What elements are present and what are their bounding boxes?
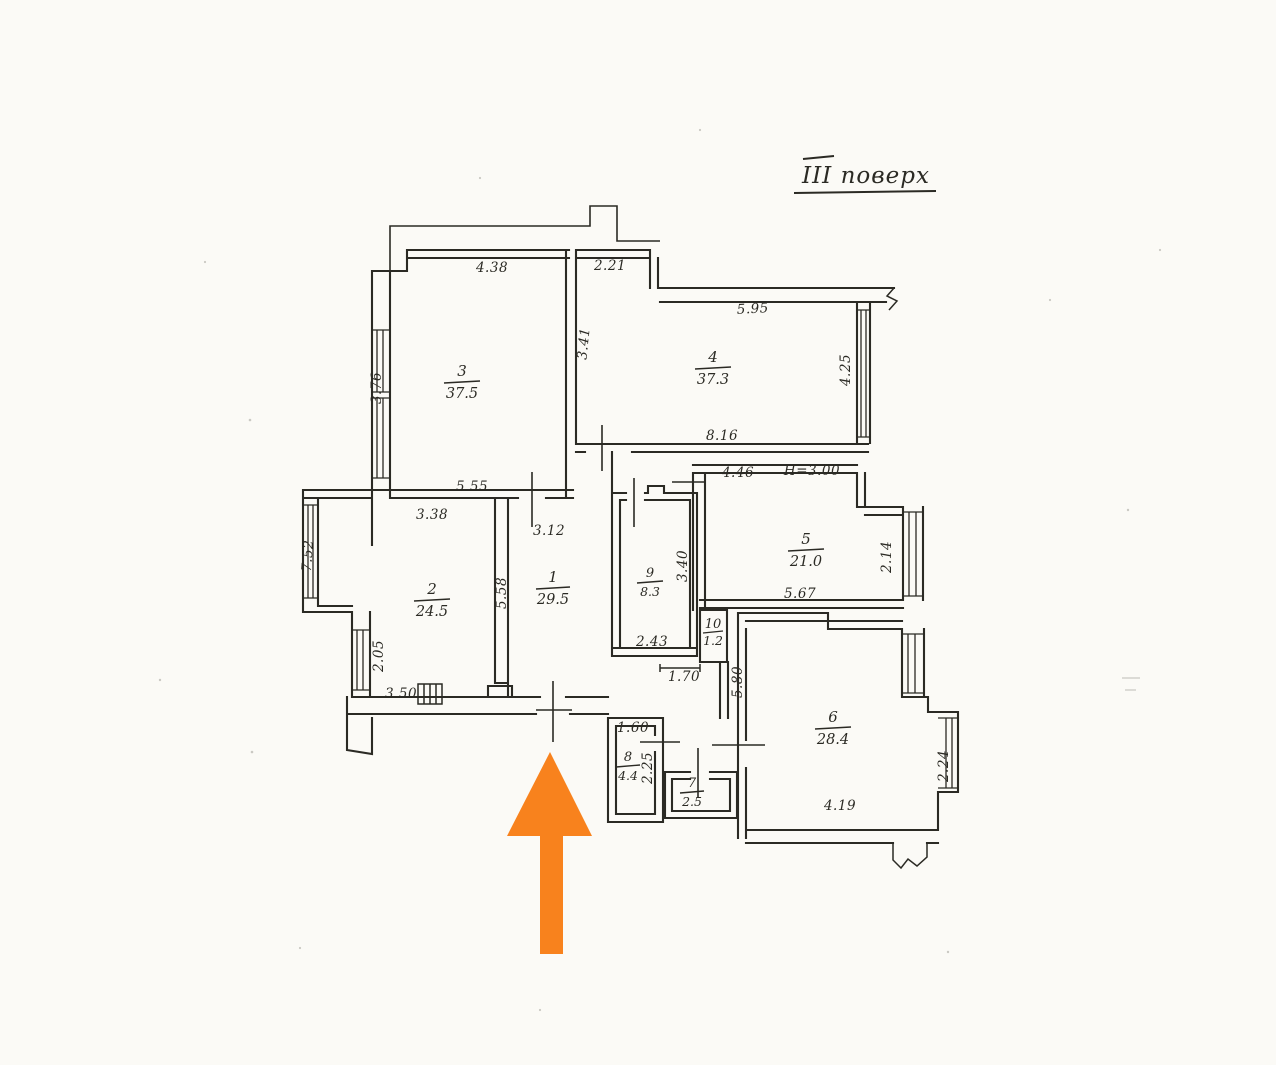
room-area: 4.4: [617, 768, 638, 783]
dim-room1-top: 3.12: [533, 523, 565, 539]
room-area: 8.3: [640, 584, 660, 599]
dim-room4-right: 4.25: [838, 354, 854, 387]
room-area: 28.4: [816, 732, 849, 748]
dim-room9-bottom: 2.43: [635, 634, 668, 650]
room-label-5: 5 21.0: [788, 530, 824, 570]
highlight-arrow: [507, 752, 592, 954]
title-underline: [794, 191, 936, 193]
room-number: 1: [548, 568, 558, 586]
dim-room9-right: 3.40: [675, 550, 691, 582]
dim-room2-left-lower: 2.05: [371, 640, 387, 673]
dim-room4-top: 5.95: [736, 300, 769, 318]
dim-room5-bottom: 5.67: [784, 586, 816, 602]
dim-room6-right: 2.24: [936, 750, 952, 783]
height-note: Н=3.00: [783, 463, 840, 479]
room-label-8: 8 4.4: [616, 750, 640, 783]
dim-room6-left: 5.80: [730, 666, 746, 698]
dim-room3-bottom: 5.55: [456, 479, 488, 495]
dim-room3-top: 4.38: [475, 260, 508, 276]
room-area: 24.5: [415, 604, 448, 620]
dim-room9-below: 1.70: [668, 669, 700, 685]
dim-room2-left: 7.52: [299, 539, 317, 572]
dim-room2-bottom: 3.50: [385, 686, 417, 702]
room-number: 6: [828, 708, 838, 726]
scanned-floor-plan-page: III поверх 3 37.5 4 37.3 2 24.5 1 29.5 9…: [0, 0, 1276, 1065]
dim-room6-bottom: 4.19: [823, 798, 856, 814]
page-title: III поверх: [801, 163, 930, 189]
room-label-3: 3 37.5: [444, 362, 480, 402]
room-number: 10: [705, 617, 722, 632]
room-number: 9: [646, 566, 654, 581]
dim-room4-topleft: 2.21: [593, 258, 626, 274]
room-number: 8: [624, 750, 632, 765]
room-number: 4: [707, 348, 718, 366]
room-area: 2.5: [681, 794, 702, 809]
room-area: 37.3: [697, 372, 729, 388]
room-label-1: 1 29.5: [536, 568, 570, 608]
room-label-4: 4 37.3: [695, 348, 731, 388]
room-area: 1.2: [703, 633, 723, 648]
dim-room5-right: 2.14: [879, 541, 895, 574]
room-number: 3: [457, 362, 467, 380]
dim-room8-right: 2.25: [640, 752, 656, 785]
title-overline: [803, 156, 834, 159]
room-label-9: 9 8.3: [637, 566, 663, 599]
room-label-2: 2 24.5: [414, 580, 450, 620]
dim-room1-left: 5.58: [494, 577, 510, 609]
room-label-7: 7 2.5: [680, 776, 704, 809]
room-number: 2: [426, 580, 437, 598]
room-label-10: 10 1.2: [703, 617, 723, 648]
room-area: 21.0: [789, 554, 822, 570]
room-label-6: 6 28.4: [815, 708, 851, 748]
window-symbols: [303, 310, 958, 788]
dim-room3-below: 3.38: [416, 507, 448, 523]
title-block: III поверх: [794, 156, 936, 193]
dim-room4-bottom: 8.16: [706, 428, 738, 444]
dim-room5-topleft: 4.46: [721, 465, 754, 481]
floor-plan: III поверх 3 37.5 4 37.3 2 24.5 1 29.5 9…: [0, 0, 1276, 1065]
room-area: 29.5: [536, 592, 569, 608]
dim-room3-right: 3.41: [574, 327, 593, 361]
room-number: 7: [688, 776, 697, 791]
room-number: 5: [801, 530, 811, 548]
dim-room3-left: 3.76: [369, 372, 385, 404]
room-area: 37.5: [446, 386, 478, 402]
dim-room8-top: 1.60: [617, 720, 649, 736]
